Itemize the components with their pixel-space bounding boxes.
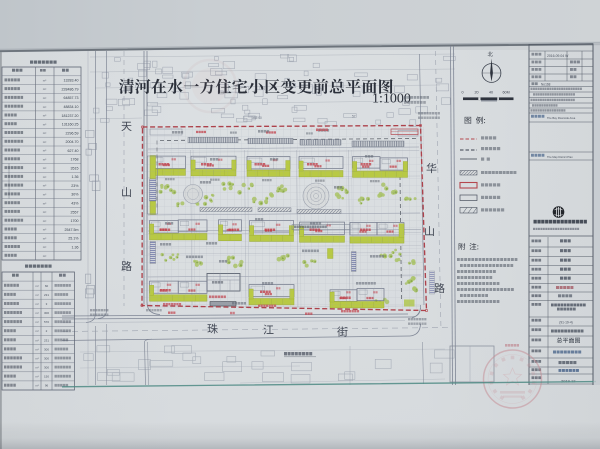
svg-text:1768: 1768 (71, 158, 79, 162)
svg-text:m²: m² (43, 157, 47, 161)
svg-text:m²: m² (43, 175, 47, 179)
svg-text:181237.20: 181237.20 (62, 114, 79, 118)
svg-text:m²: m² (35, 329, 38, 333)
svg-text:20: 20 (475, 91, 479, 95)
svg-text:3: 3 (46, 302, 48, 306)
svg-text:m²: m² (35, 384, 38, 388)
svg-text:300: 300 (44, 347, 49, 351)
svg-text:231: 231 (44, 338, 49, 342)
svg-text:m²: m² (43, 201, 47, 205)
svg-text:m²: m² (43, 236, 47, 240)
svg-text:m²: m² (43, 184, 47, 188)
svg-text:m²: m² (43, 254, 47, 258)
svg-text:m²: m² (35, 338, 38, 342)
svg-text:570: 570 (44, 320, 49, 324)
svg-text:2016-09.04 W: 2016-09.04 W (547, 54, 569, 58)
svg-text:2547.5m: 2547.5m (65, 228, 79, 232)
svg-text:No168: No168 (541, 82, 551, 86)
svg-text:3515: 3515 (71, 166, 79, 170)
svg-text:150: 150 (44, 375, 49, 379)
svg-text:48834.10: 48834.10 (64, 105, 79, 109)
svg-text:m²: m² (35, 302, 38, 306)
svg-text:23%: 23% (71, 184, 79, 188)
svg-text:m²: m² (43, 219, 47, 223)
svg-text:m²: m² (35, 293, 38, 297)
svg-text:m²: m² (43, 210, 47, 214)
svg-text:2004.70: 2004.70 (66, 140, 79, 144)
svg-text:m²: m² (43, 122, 47, 126)
svg-text:300: 300 (44, 311, 49, 315)
svg-text:352.40: 352.40 (252, 116, 262, 120)
svg-text:m²: m² (43, 140, 47, 144)
svg-text:1.36: 1.36 (72, 175, 79, 179)
svg-text:300: 300 (44, 366, 49, 370)
svg-text:1.36: 1.36 (72, 245, 79, 249)
svg-text:m²: m² (43, 149, 47, 153)
svg-text:m²: m² (35, 311, 38, 315)
svg-text:m²: m² (43, 87, 47, 91)
svg-text:m²: m² (35, 320, 38, 324)
svg-text:1700: 1700 (71, 219, 79, 223)
svg-text:60M: 60M (503, 91, 510, 95)
svg-text:2019.12: 2019.12 (561, 379, 576, 384)
svg-text:96: 96 (45, 384, 49, 388)
svg-text:The Map District Plan: The Map District Plan (547, 155, 573, 159)
svg-text:60: 60 (45, 284, 49, 288)
svg-text:m²: m² (43, 78, 47, 82)
svg-text:228486.79: 228486.79 (62, 87, 79, 91)
svg-text:64857.73: 64857.73 (64, 96, 79, 100)
svg-text:43%: 43% (71, 201, 79, 205)
svg-text:231: 231 (44, 293, 49, 297)
svg-text:m²: m² (35, 375, 38, 379)
svg-text:m²: m² (35, 347, 38, 351)
svg-text:m²: m² (43, 193, 47, 197)
svg-text:m²: m² (43, 228, 47, 232)
svg-text:m²: m² (43, 105, 47, 109)
svg-text:131160.25: 131160.25 (62, 123, 79, 127)
svg-text:30%: 30% (71, 193, 79, 197)
svg-text:m²: m² (43, 166, 47, 170)
svg-text:2: 2 (46, 329, 48, 333)
svg-text:13283.40: 13283.40 (64, 79, 79, 83)
svg-text:1:1000: 1:1000 (372, 92, 411, 107)
svg-text:2296.59: 2296.59 (66, 131, 79, 135)
svg-text:0: 0 (462, 91, 464, 95)
svg-text:m²: m² (35, 356, 38, 360)
svg-text:m²: m² (43, 96, 47, 100)
svg-text:25.1%: 25.1% (68, 237, 79, 241)
svg-text:m²: m² (43, 245, 47, 249)
svg-text:m²: m² (43, 131, 47, 135)
svg-text:m²: m² (35, 366, 38, 370)
svg-text:40: 40 (489, 91, 493, 95)
svg-text:The Bay Riverside Area: The Bay Riverside Area (547, 116, 576, 120)
svg-text:300: 300 (44, 356, 49, 360)
svg-text:m²: m² (43, 114, 47, 118)
svg-text:2557: 2557 (71, 210, 79, 214)
svg-text:627.40: 627.40 (68, 149, 79, 153)
svg-text:m²: m² (35, 284, 38, 288)
svg-text:57: 57 (352, 115, 356, 119)
svg-text:(91-19-4): (91-19-4) (559, 321, 573, 325)
